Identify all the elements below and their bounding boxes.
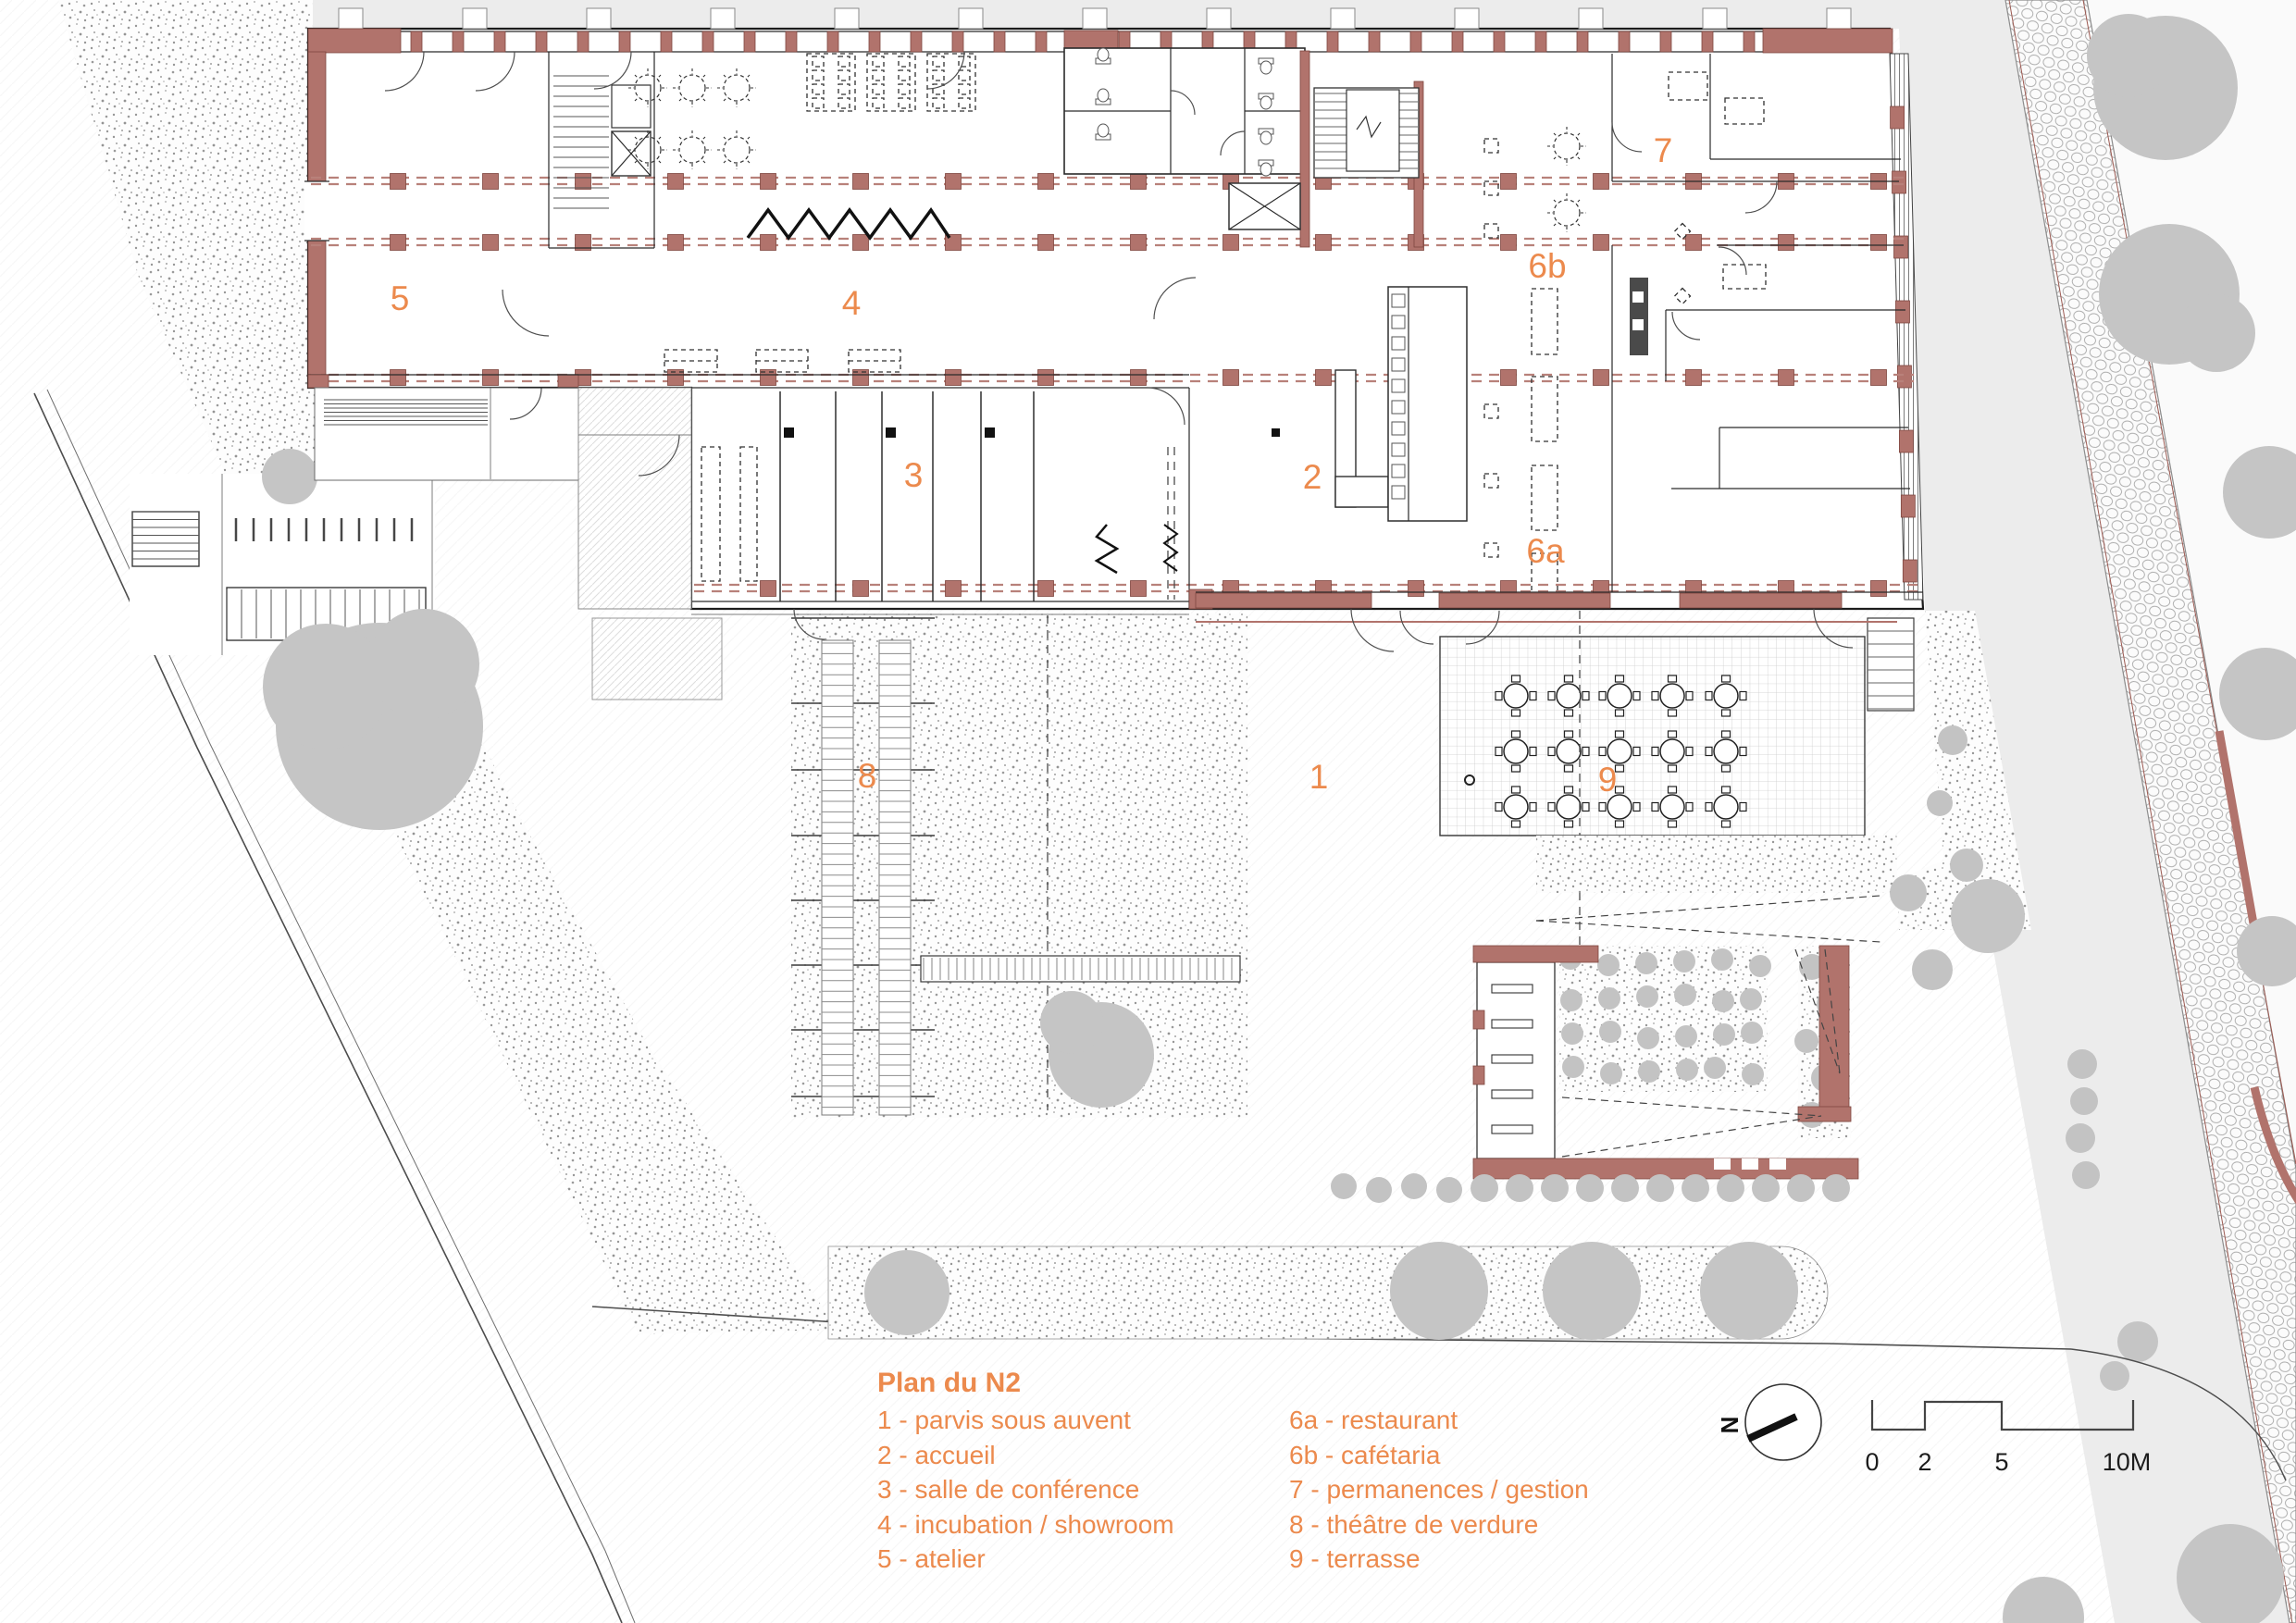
legend-item: 8 - théâtre de verdure xyxy=(1289,1507,1589,1542)
room-label-8: 8 xyxy=(858,757,877,795)
room-label-6a: 6a xyxy=(1526,532,1565,570)
elevator xyxy=(612,131,651,176)
atelier-south xyxy=(308,375,583,480)
north-label: N xyxy=(1716,1417,1744,1434)
reception-desk xyxy=(1335,477,1388,507)
legend-column-1: 1 - parvis sous auvent 2 - accueil 3 - s… xyxy=(877,1403,1289,1577)
canopy-pad xyxy=(592,618,722,700)
kitchen-counter xyxy=(1630,278,1648,355)
legend-item: 5 - atelier xyxy=(877,1542,1289,1577)
legend-column-2: 6a - restaurant 6b - cafétaria 7 - perma… xyxy=(1289,1403,1589,1577)
room-label-3: 3 xyxy=(904,456,924,494)
scale-tick-0: 0 xyxy=(1865,1448,1879,1476)
buffet-island xyxy=(1388,287,1467,521)
legend-item: 3 - salle de conférence xyxy=(877,1472,1289,1507)
room-label-2: 2 xyxy=(1303,458,1322,496)
room-label-4: 4 xyxy=(842,284,862,322)
scale-tick-2: 2 xyxy=(1917,1448,1931,1476)
legend: Plan du N2 1 - parvis sous auvent 2 - ac… xyxy=(877,1368,1673,1577)
west-wall xyxy=(304,52,329,388)
south-tree-band xyxy=(828,1246,1828,1339)
legend-title: Plan du N2 xyxy=(877,1368,1673,1399)
planter-tree xyxy=(262,449,317,504)
floor-plan-page: 1 2 3 4 5 6a 6b 7 8 9 N 0 2 5 10M Plan d… xyxy=(0,0,2296,1623)
legend-item: 9 - terrasse xyxy=(1289,1542,1589,1577)
lower-stair-band xyxy=(921,956,1240,982)
shaft xyxy=(612,85,651,128)
entry-court xyxy=(578,388,691,609)
legend-item: 6b - cafétaria xyxy=(1289,1438,1589,1473)
north-lawn xyxy=(301,0,2008,29)
room-label-1: 1 xyxy=(1309,758,1329,796)
legend-item: 2 - accueil xyxy=(877,1438,1289,1473)
theatre-gravel xyxy=(791,613,1247,1118)
room-label-6b: 6b xyxy=(1528,247,1566,285)
column-point xyxy=(1272,428,1280,437)
room-label-5: 5 xyxy=(391,279,410,317)
scale-tick-5: 5 xyxy=(1994,1448,2008,1476)
legend-item: 6a - restaurant xyxy=(1289,1403,1589,1438)
balcony-railing xyxy=(324,400,488,425)
legend-item: 1 - parvis sous auvent xyxy=(877,1403,1289,1438)
south-terrace-bed xyxy=(1536,836,1897,893)
scale-tick-10m: 10M xyxy=(2103,1448,2152,1476)
shrub-bed xyxy=(1559,946,1768,1092)
legend-item: 7 - permanences / gestion xyxy=(1289,1472,1589,1507)
central-stair xyxy=(1314,88,1419,178)
room-label-9: 9 xyxy=(1598,761,1618,799)
room-label-7: 7 xyxy=(1654,131,1673,169)
terrace-stair xyxy=(1868,618,1914,711)
terrace-tables xyxy=(1496,675,1746,827)
legend-item: 4 - incubation / showroom xyxy=(877,1507,1289,1542)
central-elevator xyxy=(1229,183,1300,229)
balcony xyxy=(315,388,583,480)
